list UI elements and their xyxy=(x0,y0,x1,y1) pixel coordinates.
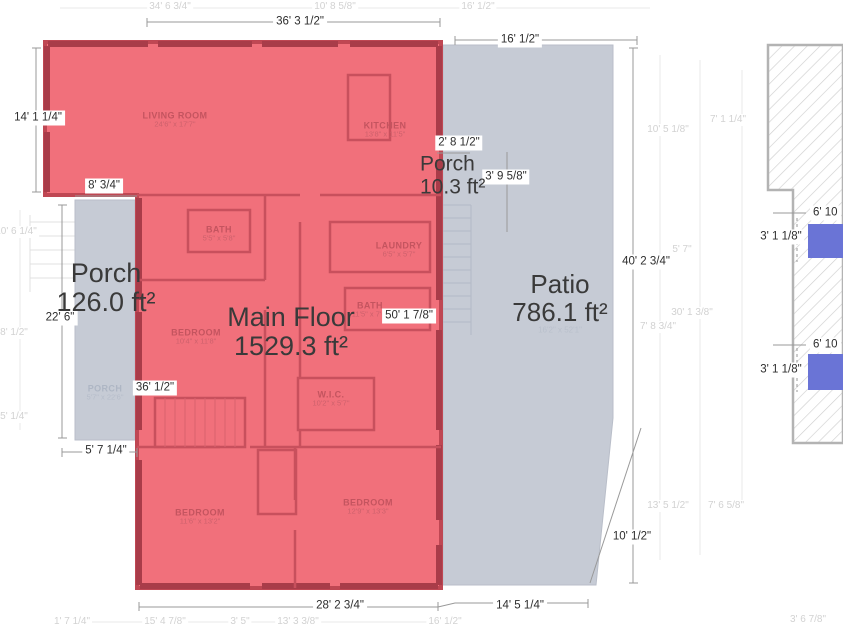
room-label-bedroom-2: BEDROOM 11'6" x 13'2" xyxy=(175,508,225,527)
room-label-laundry: LAUNDRY 6'5" x 5'7" xyxy=(376,241,422,260)
dimension-label: 14' 5 1/4" xyxy=(493,599,547,614)
room-label-kitchen: KITCHEN 13'8" x 11'5" xyxy=(364,121,407,140)
room-label-bedroom-1: BEDROOM 10'4" x 11'8" xyxy=(171,328,221,347)
room-size: 12'9" x 13'3" xyxy=(343,508,393,517)
dimension-label: 3' 1 1/8" xyxy=(757,230,804,245)
faint-dimension-label: 7' 8 3/4" xyxy=(638,321,678,333)
porch-left-region[interactable] xyxy=(75,200,135,440)
porch-left-area-label: Porch 126.0 ft² xyxy=(56,259,155,317)
room-size: 5'5" x 5'8" xyxy=(203,235,236,244)
dimension-label: 3' 1 1/8" xyxy=(757,363,804,378)
highlight-segment-top[interactable] xyxy=(808,224,843,258)
room-size: 11'6" x 13'2" xyxy=(175,518,225,527)
porch-small-value: 10.3 ft² xyxy=(420,176,485,199)
patio-name: Patio xyxy=(512,270,607,298)
patio-area-label: Patio 786.1 ft² xyxy=(512,270,607,326)
faint-dimension-label: 30' 1 3/8" xyxy=(669,307,715,319)
porch-small-area-label: Porch 10.3 ft² xyxy=(420,153,485,198)
dimension-label: 36' 1/2" xyxy=(133,381,177,396)
room-label-bath-1: BATH 5'5" x 5'8" xyxy=(203,225,236,244)
room-size: 6'5" x 5'7" xyxy=(376,251,422,260)
room-size: 10'4" x 11'8" xyxy=(171,338,221,347)
highlight-segment-bottom[interactable] xyxy=(808,354,843,390)
dimension-label: 10' 1/2" xyxy=(610,530,654,545)
dimension-label: 3' 9 5/8" xyxy=(482,170,529,185)
faint-dimension-label: 13' 3 3/8" xyxy=(275,616,321,628)
porch-left-value: 126.0 ft² xyxy=(56,288,155,317)
patio-value: 786.1 ft² xyxy=(512,298,607,326)
porch-small-name: Porch xyxy=(420,153,485,176)
faint-dimension-label: 15' 4 7/8" xyxy=(142,616,188,628)
dimension-label: 36' 3 1/2" xyxy=(273,15,327,30)
faint-dimension-label: 5' 7" xyxy=(670,244,693,256)
room-size: 10'2" x 5'7" xyxy=(313,400,350,409)
room-label-bedroom-3: BEDROOM 12'9" x 13'3" xyxy=(343,498,393,517)
room-size: 13'8" x 11'5" xyxy=(364,131,407,140)
faint-dimension-label: 3' 5" xyxy=(228,616,251,628)
dimension-label: 6' 10 xyxy=(810,206,841,221)
dimension-label: 40' 2 3/4" xyxy=(619,255,673,270)
faint-dimension-label: 10' 5 1/8" xyxy=(645,124,691,136)
faint-dimension-label: 7' 1 1/4" xyxy=(708,114,748,126)
dimension-label: 5' 7 1/4" xyxy=(82,444,129,459)
dimension-label: 16' 1/2" xyxy=(498,33,542,48)
dimension-label: 28' 2 3/4" xyxy=(313,599,367,614)
main-floor-area-label: Main Floor 1529.3 ft² xyxy=(227,303,355,361)
faint-dimension-label: 8' 1/2" xyxy=(0,327,30,339)
main-floor-value: 1529.3 ft² xyxy=(227,332,355,361)
faint-dimension-label: 1' 7 1/4" xyxy=(52,616,92,628)
faint-dimension-label: 34' 6 3/4" xyxy=(147,1,193,13)
dimension-label: 50' 1 7/8" xyxy=(382,309,436,324)
porch-left-name: Porch xyxy=(56,259,155,288)
dimension-label: 8' 3/4" xyxy=(85,179,123,194)
faint-dimension-label: 10' 8 5/8" xyxy=(312,1,358,13)
room-label-porch: PORCH 5'7" x 22'6" xyxy=(87,384,124,403)
faint-dimension-label: 3' 6 7/8" xyxy=(788,614,828,626)
faint-dimension-label: 7' 6 5/8" xyxy=(706,500,746,512)
faint-dimension-label: 16' 1/2" xyxy=(426,616,463,628)
room-label-wic: W.I.C. 10'2" x 5'7" xyxy=(313,390,350,409)
faint-dimension-label: 13' 5 1/2" xyxy=(645,500,691,512)
room-label-living-room: LIVING ROOM 24'6" x 17'7" xyxy=(143,111,208,130)
room-size: 24'6" x 17'7" xyxy=(143,121,208,130)
room-size: 5'7" x 22'6" xyxy=(87,394,124,403)
dimension-label: 2' 8 1/2" xyxy=(435,136,482,151)
faint-dimension-label: 16' 1/2" xyxy=(459,1,496,13)
floorplan-canvas: 36' 3 1/2" 16' 1/2" 14' 1 1/4" 8' 3/4" 2… xyxy=(0,0,843,632)
main-floor-name: Main Floor xyxy=(227,303,355,332)
dimension-label: 14' 1 1/4" xyxy=(11,111,65,126)
dimension-label: 6' 10 xyxy=(810,338,841,353)
faint-dimension-label: 10' 6 1/4" xyxy=(0,226,39,238)
faint-dimension-label: 5' 1/4" xyxy=(0,411,30,423)
